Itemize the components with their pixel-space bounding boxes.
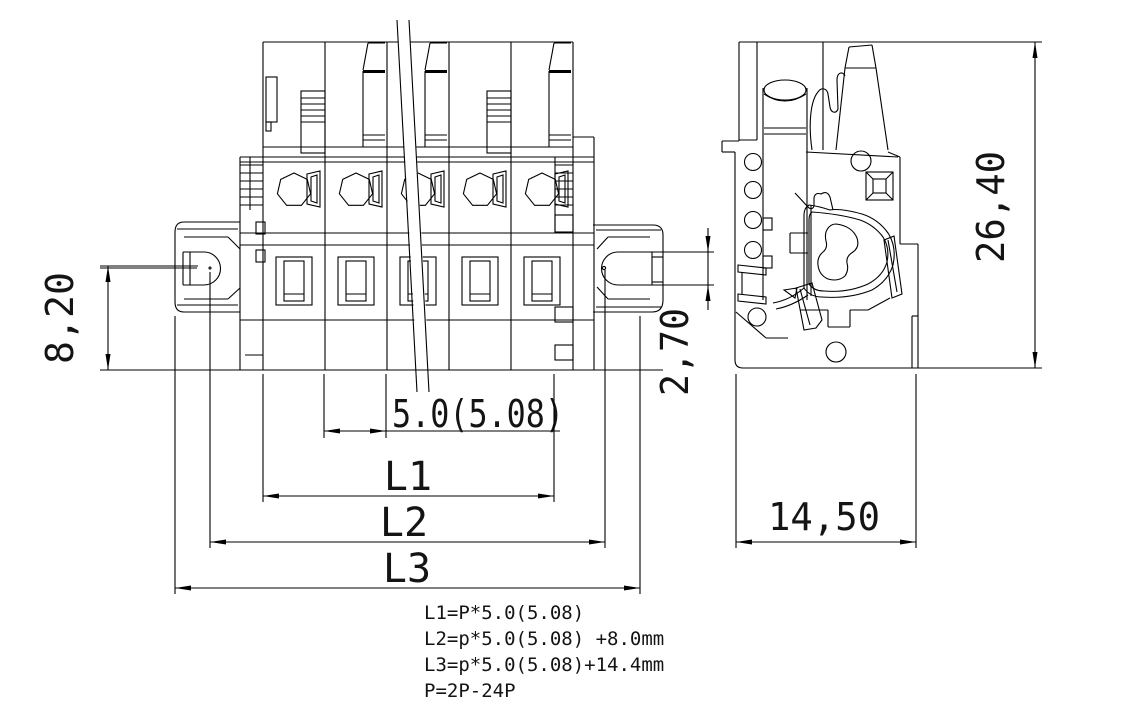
center-mark-dot [602, 266, 605, 269]
side-lever [810, 45, 888, 150]
overall-depth-dimension-label: 14,50 [768, 495, 880, 539]
side-spring-clamp [773, 193, 902, 330]
dimensions: 5.0(5.08) L1 L2 L3 [38, 42, 1038, 594]
dimension-overall-height: 26,40 [969, 42, 1038, 368]
side-square-window [866, 172, 893, 200]
right-mounting-ear [593, 225, 663, 312]
left-mounting-ear [100, 222, 240, 312]
front-top-row [266, 43, 571, 153]
l3-dimension-label: L3 [383, 546, 431, 592]
l2-dimension-label: L2 [380, 500, 428, 546]
note-line-2: L2=p*5.0(5.08) +8.0mm [424, 628, 664, 650]
tab-thickness-dimension-label: 2,70 [653, 308, 697, 396]
overall-height-dimension-label: 26,40 [969, 151, 1013, 263]
pitch-dimension-label: 5.0(5.08) [392, 392, 564, 436]
formula-notes: L1=P*5.0(5.08) L2=p*5.0(5.08) +8.0mm L3=… [424, 602, 664, 702]
break-line [397, 20, 429, 392]
note-line-1: L1=P*5.0(5.08) [424, 602, 584, 624]
dimension-pitch: 5.0(5.08) [324, 374, 564, 438]
dimension-ear-height: 8,20 [38, 266, 198, 370]
ear-height-dimension-label: 8,20 [38, 272, 82, 364]
front-view [100, 20, 663, 392]
note-line-3: L3=p*5.0(5.08)+14.4mm [424, 654, 664, 676]
side-holes [745, 154, 847, 363]
l1-dimension-label: L1 [384, 454, 432, 500]
dimension-tab-thickness: 2,70 [650, 228, 714, 396]
side-cylinder [763, 80, 807, 300]
terminal-block-drawing: 5.0(5.08) L1 L2 L3 [0, 0, 1131, 719]
note-line-4: P=2P-24P [424, 680, 516, 702]
side-foot [736, 265, 890, 338]
technical-drawing-sheet: 5.0(5.08) L1 L2 L3 [0, 0, 1131, 719]
dimension-overall-depth: 14,50 [736, 374, 916, 548]
